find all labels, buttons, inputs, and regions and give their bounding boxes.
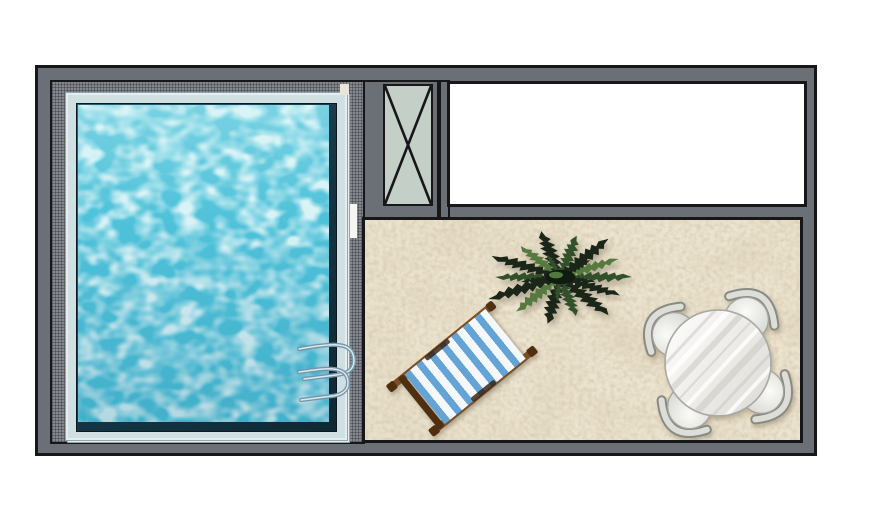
pool-ladder [296,334,362,410]
empty-room [447,81,807,207]
deck-opening-marker-mid [350,204,357,238]
deck-chair-frame [386,298,539,441]
water-light-gradient [78,105,329,422]
wall-divider-line [437,80,441,220]
deck-opening-marker-top [340,84,349,95]
sand-terrace [362,217,803,443]
deck-chair [377,289,547,443]
pool-water [78,105,329,422]
crossed-column-marker [383,84,433,206]
dining-set [633,277,803,443]
floor-plan [35,65,817,456]
x-cross-icon [385,86,431,204]
